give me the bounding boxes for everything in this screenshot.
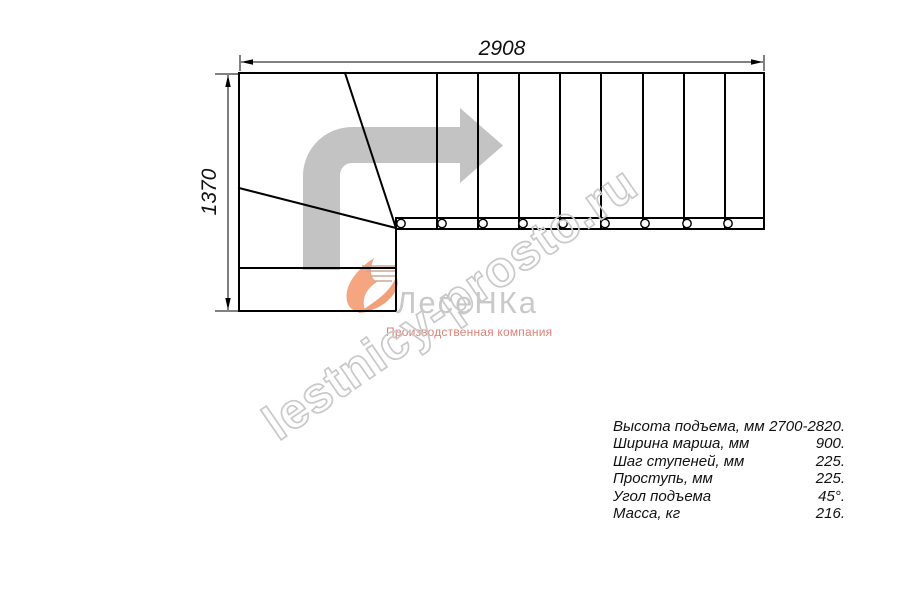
logo-subtitle: Производственная компания <box>386 325 552 339</box>
spec-row-flight-width: Ширина марша, мм 900. <box>613 435 845 452</box>
screenshot-canvas: 2908 1370 ЛесеНКа Производственная компа… <box>0 0 900 600</box>
dim-arrow-left-icon <box>241 59 253 64</box>
spec-value: 900. <box>816 435 845 452</box>
dim-arrow-up-icon <box>225 75 230 87</box>
logo-company-name: ЛесеНКа <box>396 285 538 321</box>
spec-label: Шаг ступеней, мм <box>613 453 744 470</box>
spec-label: Масса, кг <box>613 505 680 522</box>
spec-label: Ширина марша, мм <box>613 435 749 452</box>
spec-label: Высота подъема, мм <box>613 418 765 435</box>
spec-row-step-pitch: Шаг ступеней, мм 225. <box>613 453 845 470</box>
dimension-width: 2908 <box>240 37 764 71</box>
fastener-circles <box>397 219 732 227</box>
spec-value: 2700-2820. <box>769 418 845 435</box>
dimension-width-label: 2908 <box>478 37 526 60</box>
spec-value: 225. <box>816 453 845 470</box>
spec-value: 225. <box>816 470 845 487</box>
dimension-height: 1370 <box>198 74 238 311</box>
spec-table: Высота подъема, мм 2700-2820. Ширина мар… <box>613 418 845 522</box>
direction-arrow-icon <box>303 108 503 270</box>
spec-label: Проступь, мм <box>613 470 713 487</box>
spec-row-tread-depth: Проступь, мм 225. <box>613 470 845 487</box>
spec-value: 216. <box>816 505 845 522</box>
dim-arrow-down-icon <box>225 298 230 310</box>
logo-swoosh-icon <box>347 258 398 313</box>
spec-value: 45°. <box>818 488 845 505</box>
spec-label: Угол подъема <box>613 488 711 505</box>
dimension-height-label: 1370 <box>198 168 221 215</box>
spec-row-rise-height: Высота подъема, мм 2700-2820. <box>613 418 845 435</box>
spec-row-mass: Масса, кг 216. <box>613 505 845 522</box>
spec-row-rise-angle: Угол подъема 45°. <box>613 488 845 505</box>
dim-arrow-right-icon <box>751 59 763 64</box>
